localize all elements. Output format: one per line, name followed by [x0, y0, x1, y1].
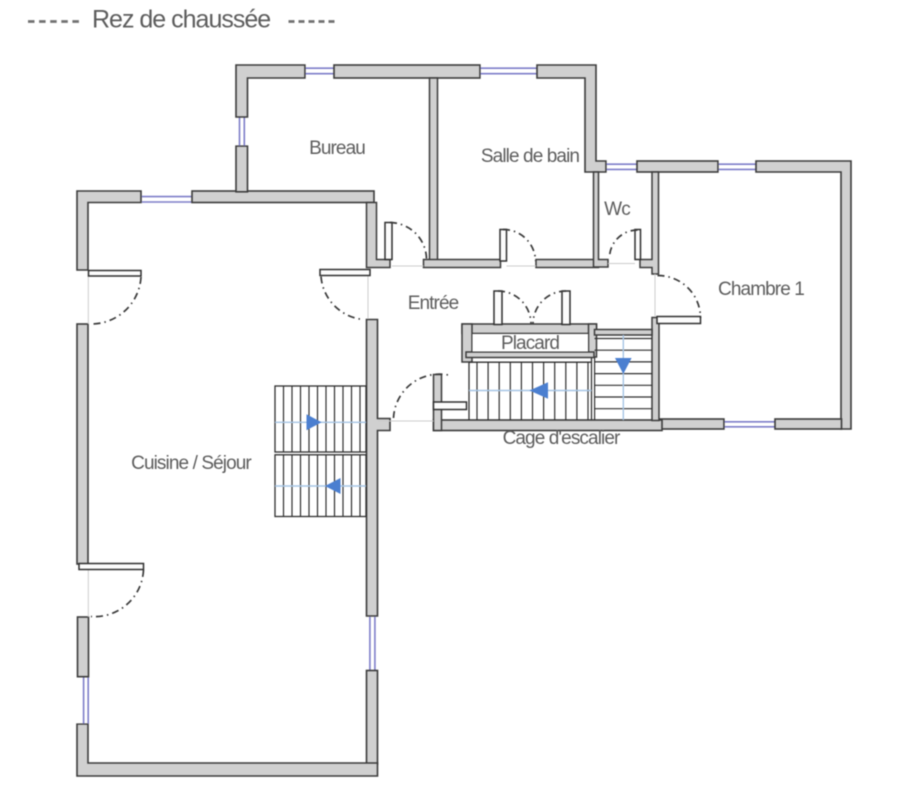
- svg-text:Chambre 1: Chambre 1: [718, 279, 804, 300]
- svg-text:Cage d'escalier: Cage d'escalier: [503, 428, 621, 449]
- svg-text:Entrée: Entrée: [408, 293, 459, 314]
- svg-text:Salle de bain: Salle de bain: [481, 146, 579, 167]
- svg-text:Cuisine / Séjour: Cuisine / Séjour: [131, 453, 252, 474]
- svg-text:Rez de chaussée: Rez de chaussée: [92, 5, 270, 33]
- svg-text:Bureau: Bureau: [309, 138, 365, 159]
- svg-text:Placard: Placard: [501, 333, 559, 354]
- svg-text:Wc: Wc: [604, 199, 630, 220]
